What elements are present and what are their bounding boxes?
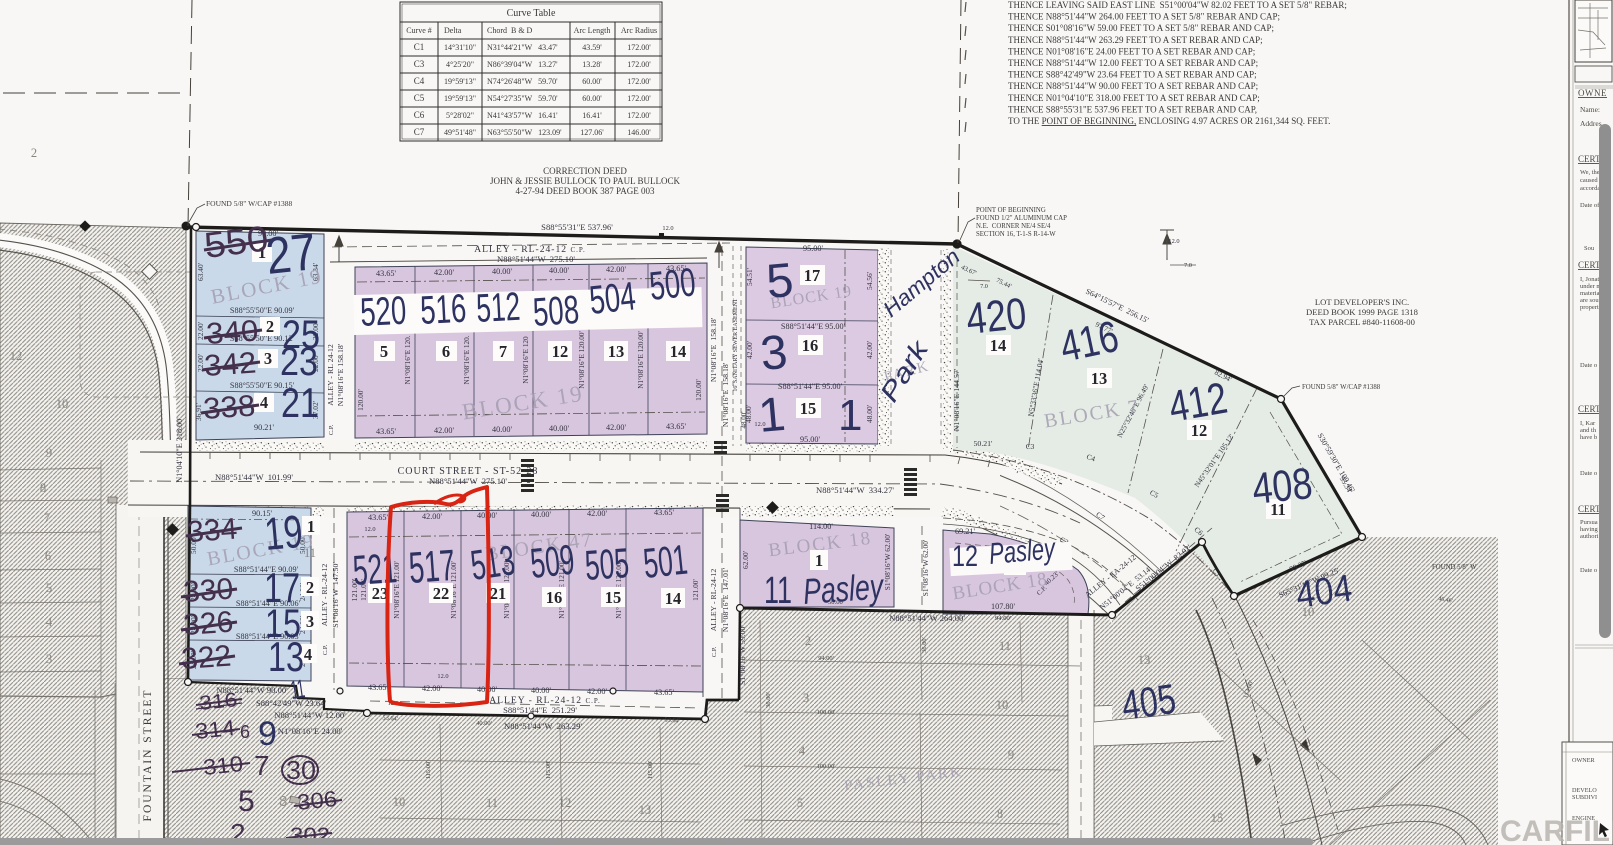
svg-text:S88°51'44"E 251.29': S88°51'44"E 251.29' xyxy=(503,705,577,715)
svg-text:27: 27 xyxy=(263,223,319,286)
svg-text:Pasley: Pasley xyxy=(988,532,1058,571)
svg-text:3: 3 xyxy=(803,691,809,705)
svg-text:S88°51'44"E 95.00': S88°51'44"E 95.00' xyxy=(781,322,846,331)
svg-text:N1°08'16"E 144.57': N1°08'16"E 144.57' xyxy=(952,368,961,431)
svg-text:172.00': 172.00' xyxy=(627,94,651,103)
svg-text:CARFILE, INC: CARFILE, INC xyxy=(1500,815,1613,845)
svg-text:C3: C3 xyxy=(1026,442,1035,451)
svg-text:S1°08'16"W 62.00': S1°08'16"W 62.00' xyxy=(921,539,930,596)
svg-text:Name:: Name: xyxy=(1580,105,1600,114)
svg-text:15: 15 xyxy=(800,399,817,418)
svg-text:THENCE LEAVING SAID EAST LINE: THENCE LEAVING SAID EAST LINE S51°00'04"… xyxy=(1008,0,1347,10)
svg-text:1: 1 xyxy=(307,517,315,536)
svg-text:50.21': 50.21' xyxy=(974,439,994,448)
svg-text:412: 412 xyxy=(1165,374,1231,432)
svg-text:420: 420 xyxy=(964,289,1029,344)
svg-text:N88°51'44"W 275.10': N88°51'44"W 275.10' xyxy=(429,476,507,486)
svg-text:9: 9 xyxy=(46,446,52,460)
svg-text:40.00': 40.00' xyxy=(476,720,492,727)
svg-text:63.40': 63.40' xyxy=(196,262,205,281)
svg-text:12: 12 xyxy=(559,796,572,810)
svg-text:THENCE N01°08'16"E 24.00 FEET: THENCE N01°08'16"E 24.00 FEET TO A SET R… xyxy=(1008,46,1255,56)
svg-text:5: 5 xyxy=(238,785,255,818)
svg-text:115.00': 115.00' xyxy=(425,761,432,780)
svg-text:N74°26'48"W 59.70': N74°26'48"W 59.70' xyxy=(487,77,558,86)
svg-text:21: 21 xyxy=(490,584,507,603)
svg-text:FOUND 1/2" ALUMINUM CAP: FOUND 1/2" ALUMINUM CAP xyxy=(976,215,1067,222)
svg-text:materia: materia xyxy=(1580,290,1600,297)
svg-text:C3: C3 xyxy=(414,59,425,69)
svg-text:516: 516 xyxy=(419,287,467,333)
svg-text:43.65': 43.65' xyxy=(368,683,388,692)
svg-text:7: 7 xyxy=(499,342,507,361)
svg-text:36.00': 36.00' xyxy=(921,637,928,653)
svg-text:127.06': 127.06' xyxy=(580,128,604,137)
svg-text:Date of: Date of xyxy=(1580,202,1600,209)
svg-text:42.00': 42.00' xyxy=(422,684,442,693)
svg-text:11: 11 xyxy=(304,546,316,560)
svg-text:172.00': 172.00' xyxy=(627,111,651,120)
svg-text:172.00': 172.00' xyxy=(627,77,651,86)
svg-text:13: 13 xyxy=(1091,369,1108,388)
svg-text:THENCE N88°51'44"W 263.29 FEET: THENCE N88°51'44"W 263.29 FEET TO A SET … xyxy=(1008,35,1263,45)
svg-text:CERT: CERT xyxy=(1578,504,1601,514)
svg-text:2: 2 xyxy=(31,146,37,160)
svg-text:12.0: 12.0 xyxy=(1168,238,1179,245)
svg-text:100.00': 100.00' xyxy=(817,763,836,770)
svg-text:69.21': 69.21' xyxy=(955,527,975,536)
svg-text:10: 10 xyxy=(56,397,69,411)
svg-text:146.00': 146.00' xyxy=(627,128,651,137)
svg-text:115.00': 115.00' xyxy=(647,761,654,780)
svg-text:1: 1 xyxy=(838,391,862,440)
svg-text:TAX PARCEL #840-11608-00: TAX PARCEL #840-11608-00 xyxy=(1309,317,1415,327)
svg-text:We, the: We, the xyxy=(1580,169,1600,176)
svg-text:2: 2 xyxy=(306,578,314,597)
svg-text:Date o: Date o xyxy=(1580,362,1597,369)
svg-text:Curve Table: Curve Table xyxy=(507,8,556,19)
svg-text:Pursua: Pursua xyxy=(1580,519,1598,526)
svg-text:40.00': 40.00' xyxy=(492,425,512,434)
svg-text:S1°08'16"W 62.00': S1°08'16"W 62.00' xyxy=(883,533,892,590)
svg-text:LOT DEVELOPER'S INC.: LOT DEVELOPER'S INC. xyxy=(1315,297,1409,307)
svg-text:48.00': 48.00' xyxy=(744,404,753,423)
svg-text:12: 12 xyxy=(552,342,569,361)
svg-text:9: 9 xyxy=(258,715,277,753)
svg-text:3: 3 xyxy=(46,652,52,666)
svg-text:N88°51'44"W 334.27': N88°51'44"W 334.27' xyxy=(816,485,894,495)
svg-text:40.00': 40.00' xyxy=(531,510,551,519)
svg-text:FOUNTAIN STREET: FOUNTAIN STREET xyxy=(142,689,154,822)
svg-text:49°51'48": 49°51'48" xyxy=(444,128,476,137)
svg-text:Arc Length: Arc Length xyxy=(574,26,611,35)
svg-text:C.P.: C.P. xyxy=(328,424,335,435)
svg-text:under n: under n xyxy=(1580,283,1600,290)
svg-text:N31°44'21"W 43.47': N31°44'21"W 43.47' xyxy=(487,43,558,52)
svg-text:19°59'13": 19°59'13" xyxy=(444,94,476,103)
svg-text:and th: and th xyxy=(1580,427,1597,434)
svg-text:8: 8 xyxy=(997,807,1003,821)
svg-text:FOUND 5/8" W: FOUND 5/8" W xyxy=(1432,564,1477,571)
svg-text:C7: C7 xyxy=(414,127,425,137)
svg-text:CORRECTION DEED: CORRECTION DEED xyxy=(543,166,627,176)
svg-text:THENCE S88°55'31"E 537.96 FEET: THENCE S88°55'31"E 537.96 FEET TO A SET … xyxy=(1008,104,1257,114)
svg-text:94.00': 94.00' xyxy=(995,615,1011,622)
svg-text:THENCE N01°04'10"E 318.00 FEET: THENCE N01°04'10"E 318.00 FEET TO A SET … xyxy=(1008,93,1260,103)
svg-text:120.00': 120.00' xyxy=(694,379,703,401)
svg-text:N.E. CORNER NE/4 SE/4: N.E. CORNER NE/4 SE/4 xyxy=(976,223,1051,230)
svg-text:90.21': 90.21' xyxy=(254,423,274,432)
svg-text:Date o: Date o xyxy=(1580,567,1597,574)
svg-text:3: 3 xyxy=(306,612,314,631)
svg-text:N1°08'16"E 158.18': N1°08'16"E 158.18' xyxy=(721,362,730,427)
svg-text:2: 2 xyxy=(805,634,811,648)
svg-text:8: 8 xyxy=(279,793,287,810)
svg-text:53.64': 53.64' xyxy=(664,716,680,724)
svg-text:4: 4 xyxy=(304,645,312,664)
svg-text:C.P.: C.P. xyxy=(322,644,329,655)
svg-text:43.65': 43.65' xyxy=(666,422,686,431)
svg-text:N86°39'04"W 13.27': N86°39'04"W 13.27' xyxy=(487,60,558,69)
svg-text:4: 4 xyxy=(260,393,268,412)
svg-text:THENCE N88°51'44"W 264.00 FEET: THENCE N88°51'44"W 264.00 FEET TO A SET … xyxy=(1008,12,1280,22)
svg-text:15: 15 xyxy=(605,588,622,607)
svg-text:7: 7 xyxy=(44,511,50,525)
svg-text:CERT: CERT xyxy=(1578,260,1601,270)
svg-text:42.00': 42.00' xyxy=(745,340,754,359)
svg-text:43.65': 43.65' xyxy=(376,427,396,436)
svg-text:6: 6 xyxy=(45,549,51,563)
svg-text:1: 1 xyxy=(756,388,787,443)
svg-text:42.00': 42.00' xyxy=(587,509,607,518)
svg-text:5: 5 xyxy=(764,254,795,309)
svg-text:having: having xyxy=(1580,526,1598,533)
svg-text:60.00': 60.00' xyxy=(582,94,602,103)
svg-text:I, Jonat: I, Jonat xyxy=(1580,276,1599,283)
svg-text:40.00': 40.00' xyxy=(549,266,569,275)
svg-text:42.00': 42.00' xyxy=(606,265,626,274)
svg-text:13: 13 xyxy=(608,342,625,361)
svg-text:512: 512 xyxy=(475,285,521,331)
svg-text:504: 504 xyxy=(587,274,637,323)
svg-text:ALLEY - RL-24-12: ALLEY - RL-24-12 xyxy=(709,569,718,632)
svg-text:22.00': 22.00' xyxy=(196,321,205,340)
svg-text:Delta: Delta xyxy=(444,26,462,35)
svg-text:16: 16 xyxy=(546,588,563,607)
svg-text:11: 11 xyxy=(764,570,792,612)
svg-text:513: 513 xyxy=(468,536,518,589)
svg-text:40.00': 40.00' xyxy=(492,267,512,276)
svg-text:40.00': 40.00' xyxy=(531,686,551,695)
svg-text:16' SANITARY SEWER EASEMENT: 16' SANITARY SEWER EASEMENT xyxy=(733,298,739,392)
svg-text:21: 21 xyxy=(281,379,319,426)
svg-text:N1°04'10"E 318.00': N1°04'10"E 318.00' xyxy=(175,417,184,483)
svg-text:508: 508 xyxy=(532,288,581,335)
svg-text:OWNER: OWNER xyxy=(1572,757,1596,764)
svg-text:caused: caused xyxy=(1580,177,1598,184)
svg-text:N1°08'16"E 24.00': N1°08'16"E 24.00' xyxy=(278,726,343,736)
svg-text:Addres: Addres xyxy=(1580,119,1602,128)
svg-text:60.00': 60.00' xyxy=(582,77,602,86)
svg-text:3: 3 xyxy=(264,349,272,368)
svg-text:19: 19 xyxy=(262,505,304,560)
svg-text:propert: propert xyxy=(1580,304,1599,311)
svg-text:12.0: 12.0 xyxy=(662,225,673,232)
svg-text:12: 12 xyxy=(10,349,23,363)
svg-text:Chord B & D: Chord B & D xyxy=(487,26,533,35)
svg-text:14: 14 xyxy=(665,589,682,608)
svg-text:95.00': 95.00' xyxy=(800,435,820,444)
svg-text:100.00': 100.00' xyxy=(817,709,836,716)
svg-text:N1°08'16"E 120.: N1°08'16"E 120. xyxy=(404,335,412,384)
svg-text:120.00': 120.00' xyxy=(356,389,365,411)
svg-text:DEED BOOK 1999 PAGE 1318: DEED BOOK 1999 PAGE 1318 xyxy=(1306,307,1418,317)
svg-text:42.00': 42.00' xyxy=(422,512,442,521)
svg-text:DEVELO: DEVELO xyxy=(1572,787,1597,794)
svg-text:ALLEY - RL 24-12: ALLEY - RL 24-12 xyxy=(326,344,335,406)
svg-text:N1°08'16"E 147.01': N1°08'16"E 147.01' xyxy=(721,567,730,632)
svg-text:521: 521 xyxy=(351,544,398,594)
svg-text:107.80': 107.80' xyxy=(991,602,1016,611)
svg-text:95.00': 95.00' xyxy=(803,244,823,253)
svg-text:7.0: 7.0 xyxy=(1184,262,1192,269)
svg-text:Date o: Date o xyxy=(1580,470,1597,477)
svg-text:12.0: 12.0 xyxy=(437,673,448,680)
svg-text:TO THE POINT OF BEGINNING, ENC: TO THE POINT OF BEGINNING, ENCLOSING 4.9… xyxy=(1008,116,1330,126)
svg-text:Curve #: Curve # xyxy=(406,26,432,35)
svg-text:are sou: are sou xyxy=(1580,297,1599,304)
svg-text:42.00': 42.00' xyxy=(587,687,607,696)
svg-text:N88°51'44"W 263.29': N88°51'44"W 263.29' xyxy=(504,721,582,731)
svg-text:N1°08'16"E 120.00': N1°08'16"E 120.00' xyxy=(637,331,645,389)
svg-text:C5: C5 xyxy=(414,93,425,103)
svg-text:CERT: CERT xyxy=(1578,154,1601,164)
svg-text:520: 520 xyxy=(359,289,407,335)
svg-text:1: 1 xyxy=(815,551,823,570)
svg-text:N41°43'57"W 16.41': N41°43'57"W 16.41' xyxy=(487,111,558,120)
svg-text:authori: authori xyxy=(1580,533,1599,540)
svg-text:5: 5 xyxy=(797,796,803,810)
svg-text:404: 404 xyxy=(1293,568,1354,617)
svg-text:13.28': 13.28' xyxy=(582,60,602,69)
svg-text:POINT OF BEGINNING: POINT OF BEGINNING xyxy=(976,207,1046,214)
svg-text:THENCE N88°51'44"W 90.00 FEET: THENCE N88°51'44"W 90.00 FEET TO A SET R… xyxy=(1008,81,1258,91)
svg-text:505: 505 xyxy=(583,539,630,589)
svg-text:THENCE S01°08'16"W 59.00 FEET: THENCE S01°08'16"W 59.00 FEET TO A SET 5… xyxy=(1008,23,1274,33)
svg-text:10: 10 xyxy=(393,795,406,809)
svg-text:43.65': 43.65' xyxy=(654,688,674,697)
svg-text:JOHN & JESSIE BULLOCK TO PAUL: JOHN & JESSIE BULLOCK TO PAUL BULLOCK xyxy=(490,176,681,186)
svg-text:THENCE N88°51'44"W 12.00 FEET: THENCE N88°51'44"W 12.00 FEET TO A SET R… xyxy=(1008,58,1258,68)
svg-text:CERT: CERT xyxy=(1578,404,1601,414)
svg-text:THENCE S88°42'49"W 23.64 FEET: THENCE S88°42'49"W 23.64 FEET TO A SET R… xyxy=(1008,70,1257,80)
svg-text:42.00': 42.00' xyxy=(865,340,874,359)
svg-text:S1°08'16"W 147.50': S1°08'16"W 147.50' xyxy=(331,562,340,628)
svg-text:Arc Radius: Arc Radius xyxy=(621,26,657,35)
svg-text:40.00': 40.00' xyxy=(549,424,569,433)
svg-text:500: 500 xyxy=(647,260,697,309)
svg-text:16: 16 xyxy=(802,336,819,355)
svg-text:SECTION 16, T-1-S R-14-W: SECTION 16, T-1-S R-14-W xyxy=(976,231,1056,238)
svg-text:23: 23 xyxy=(280,340,318,384)
svg-text:172.00': 172.00' xyxy=(627,43,651,52)
svg-text:16.41': 16.41' xyxy=(582,111,602,120)
svg-text:2: 2 xyxy=(266,317,274,336)
svg-text:N88°51'44"W 275.10': N88°51'44"W 275.10' xyxy=(497,254,575,264)
svg-text:ALLEY - RL-24-12: ALLEY - RL-24-12 xyxy=(320,564,329,627)
svg-text:7.0: 7.0 xyxy=(980,283,988,290)
svg-text:15: 15 xyxy=(1211,811,1224,825)
svg-text:14°31'10": 14°31'10" xyxy=(444,43,476,52)
svg-text:N1°08'16"E 158.18': N1°08'16"E 158.18' xyxy=(336,343,345,406)
svg-text:S1°08'16"W 59.00': S1°08'16"W 59.00' xyxy=(738,625,747,685)
svg-text:43.65': 43.65' xyxy=(376,269,396,278)
svg-text:5: 5 xyxy=(46,581,52,595)
svg-text:54.51': 54.51' xyxy=(745,267,754,286)
svg-text:12.0: 12.0 xyxy=(364,526,375,533)
svg-text:517: 517 xyxy=(407,541,456,593)
svg-text:N1°08'16"E 158.18': N1°08'16"E 158.18' xyxy=(709,317,718,382)
svg-text:have b: have b xyxy=(1580,434,1597,441)
svg-text:FOUND 5/8" W/CAP #1388: FOUND 5/8" W/CAP #1388 xyxy=(1302,384,1381,391)
svg-text:17: 17 xyxy=(804,266,821,285)
svg-text:5: 5 xyxy=(380,342,388,361)
svg-text:C.P.: C.P. xyxy=(711,646,718,657)
svg-text:Pasley: Pasley xyxy=(802,565,886,612)
svg-text:N88°51'44"W 101.99': N88°51'44"W 101.99' xyxy=(215,472,293,482)
svg-text:405: 405 xyxy=(1119,675,1179,729)
svg-text:N1°08'16"E 120: N1°08'16"E 120 xyxy=(522,336,530,384)
svg-text:11: 11 xyxy=(999,639,1011,653)
svg-text:I, Kar: I, Kar xyxy=(1580,420,1596,427)
svg-text:172.00': 172.00' xyxy=(627,60,651,69)
svg-text:FOUND 5/8" W/CAP #1388: FOUND 5/8" W/CAP #1388 xyxy=(206,199,292,208)
svg-text:N54°27'35"W 59.70': N54°27'35"W 59.70' xyxy=(487,94,558,103)
svg-text:42.00': 42.00' xyxy=(606,423,626,432)
svg-text:19°59'13": 19°59'13" xyxy=(444,77,476,86)
svg-text:N1°08'16"E 120.: N1°08'16"E 120. xyxy=(463,335,471,384)
svg-text:S88°55'31"E 537.96': S88°55'31"E 537.96' xyxy=(541,222,613,232)
svg-text:6: 6 xyxy=(442,342,450,361)
svg-text:14: 14 xyxy=(670,342,687,361)
svg-text:N63°55'50"W 123.09': N63°55'50"W 123.09' xyxy=(487,128,562,137)
svg-text:62.00': 62.00' xyxy=(741,550,750,569)
svg-text:94.00': 94.00' xyxy=(818,655,834,662)
svg-text:12: 12 xyxy=(952,540,978,573)
svg-text:48.00': 48.00' xyxy=(865,404,874,423)
svg-text:54.56': 54.56' xyxy=(865,271,874,290)
svg-text:121.00': 121.00' xyxy=(691,579,700,601)
svg-text:53.64': 53.64' xyxy=(382,714,398,722)
svg-text:7: 7 xyxy=(254,750,270,781)
svg-text:4-27-94 DEED BOOK 387 PAGE 003: 4-27-94 DEED BOOK 387 PAGE 003 xyxy=(516,186,655,196)
svg-text:8: 8 xyxy=(40,481,46,495)
svg-text:3: 3 xyxy=(758,326,789,381)
svg-text:N88°51'44"W 12.00': N88°51'44"W 12.00' xyxy=(274,710,346,720)
svg-text:SUBDIVI: SUBDIVI xyxy=(1572,794,1597,801)
svg-text:42.00': 42.00' xyxy=(434,426,454,435)
svg-text:4: 4 xyxy=(46,615,53,629)
svg-text:accorda: accorda xyxy=(1580,185,1600,192)
svg-text:OWNE: OWNE xyxy=(1578,88,1607,98)
svg-text:114.00': 114.00' xyxy=(809,522,833,531)
svg-text:C6: C6 xyxy=(414,110,425,120)
svg-text:4: 4 xyxy=(799,744,806,758)
svg-text:36.00': 36.00' xyxy=(765,692,772,708)
svg-text:6: 6 xyxy=(240,722,250,742)
svg-text:10: 10 xyxy=(996,698,1009,712)
svg-text:509: 509 xyxy=(528,536,577,587)
svg-text:43.59': 43.59' xyxy=(582,43,602,52)
svg-text:11: 11 xyxy=(486,796,498,810)
svg-text:C4: C4 xyxy=(414,76,425,86)
svg-text:13: 13 xyxy=(1138,653,1151,667)
svg-text:42.00': 42.00' xyxy=(434,268,454,277)
svg-text:N88°51'44"W 264.00': N88°51'44"W 264.00' xyxy=(889,613,965,623)
svg-text:5°28'02": 5°28'02" xyxy=(446,111,474,120)
svg-text:43.65': 43.65' xyxy=(654,508,674,517)
svg-text:C1: C1 xyxy=(414,42,425,52)
svg-text:9: 9 xyxy=(1008,748,1014,762)
svg-text:4°25'20": 4°25'20" xyxy=(446,60,474,69)
svg-text:408: 408 xyxy=(1250,459,1315,514)
svg-text:43.65': 43.65' xyxy=(368,513,388,522)
svg-text:S88°51'44"E 95.00': S88°51'44"E 95.00' xyxy=(778,382,843,391)
svg-text:Sou: Sou xyxy=(1584,245,1595,252)
svg-text:115.00': 115.00' xyxy=(545,761,552,780)
svg-text:501: 501 xyxy=(641,536,690,587)
